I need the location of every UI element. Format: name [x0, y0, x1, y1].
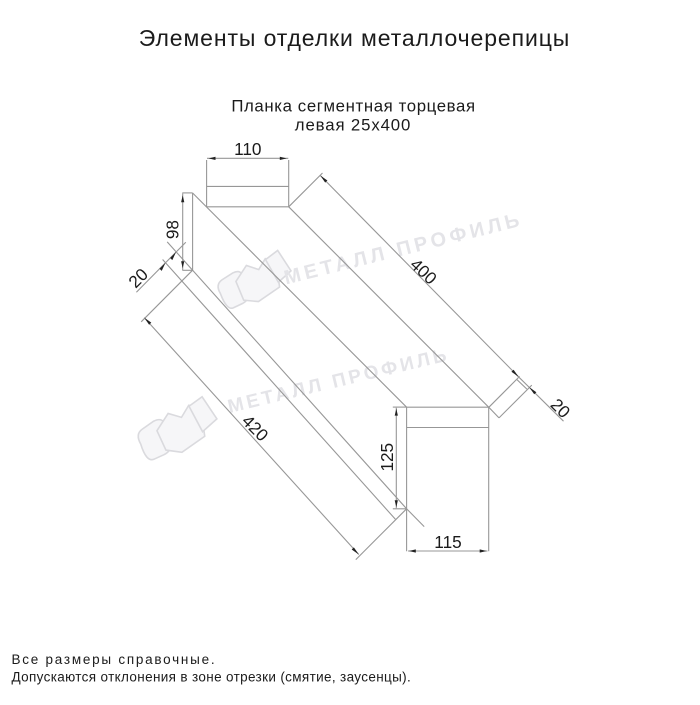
svg-text:Планка сегментная торцевая: Планка сегментная торцевая: [231, 96, 475, 115]
svg-text:левая 25х400: левая 25х400: [295, 116, 411, 135]
svg-text:125: 125: [377, 443, 397, 472]
svg-text:98: 98: [163, 220, 183, 239]
svg-text:Допускаются отклонения в зоне: Допускаются отклонения в зоне отрезки (с…: [12, 670, 412, 685]
svg-text:Все размеры справочные.: Все размеры справочные.: [12, 652, 217, 667]
svg-text:110: 110: [234, 139, 261, 159]
svg-text:Элементы отделки металлочерепи: Элементы отделки металлочерепицы: [139, 25, 570, 51]
svg-text:115: 115: [434, 532, 461, 552]
